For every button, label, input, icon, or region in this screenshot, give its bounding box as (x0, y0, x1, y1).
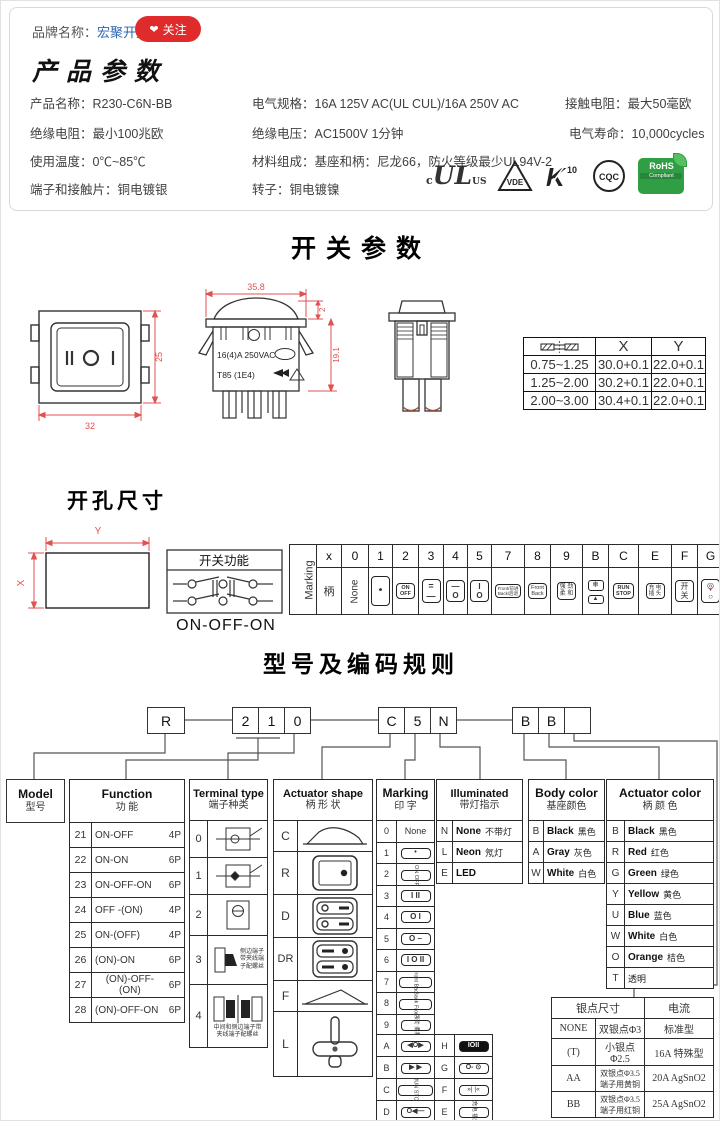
follow-button-label: 关注 (163, 21, 187, 38)
table-row: Marking x 0 1 2 3 4 5 7 8 9 B C E F G (290, 545, 720, 568)
code-box-color: B B (512, 707, 591, 734)
actuator-shape-l (298, 1012, 373, 1077)
cqc-logo: CQC (591, 158, 627, 194)
table-row: ELED (437, 863, 523, 884)
coding-rules-title: 型号及编码规则 (1, 645, 720, 679)
svg-text:X: X (16, 579, 27, 586)
actuator-shape-table: Actuator shape 柄 形 状 C R D DR (273, 779, 373, 1077)
table-row: NONE 双银点Φ3 标准型 (552, 1019, 714, 1039)
spec-terminal-plating: 端子和接触片：铜电镀银 (30, 179, 168, 198)
icon-marking-cell: ❄ ▲ (583, 568, 609, 615)
table-row: AGray灰色 (529, 842, 605, 863)
certification-logos: c UL US VDE K 10 CQC RoHS Compliant (426, 158, 684, 194)
triangle-icon: ▲ (588, 595, 604, 604)
col-y-header: Y (652, 338, 706, 356)
table-row: R (274, 852, 373, 895)
svg-text:2: 2 (318, 307, 327, 312)
table-row: F (274, 981, 373, 1012)
table-row: 0 (190, 821, 268, 858)
k10-logo: K 10 (544, 160, 580, 192)
table-row: C (274, 821, 373, 852)
svg-text:35.8: 35.8 (247, 282, 265, 292)
table-row: 4O I (377, 907, 435, 929)
table-header: Marking 印 字 (377, 780, 435, 821)
table-row: 9强劲 柔和 (377, 1014, 435, 1036)
xy-tolerance-table: X Y 0.75~1.2530.0+0.122.0+0.1 1.25~2.003… (523, 337, 706, 410)
table-row: 1.25~2.0030.2+0.122.0+0.1 (524, 374, 706, 392)
svg-text:T85 (1E4): T85 (1E4) (217, 370, 255, 380)
table-header: Actuator color 柄 颜 色 (607, 780, 714, 821)
actuator-color-table: Actuator color 柄 颜 色 BBlack黑色 RRed红色 GGr… (606, 779, 714, 989)
brand-label: 品牌名称： (32, 25, 97, 40)
dpdt-circuit-diagram (173, 577, 273, 605)
table-row: 5O – (377, 928, 435, 950)
svg-text:CQC: CQC (599, 172, 620, 182)
table-row: 27(ON)-OFF-(ON)6P (70, 973, 185, 998)
spec-rotor: 转子：铜电镀镍 (252, 179, 340, 198)
silver-point-table: 银点尺寸 电流 NONE 双银点Φ3 标准型 (T) 小银点Φ2.5 16A 特… (551, 997, 714, 1118)
product-params-title: 产品参数 (32, 52, 168, 88)
product-spec-page: 品牌名称：宏聚开关 ❤ 关注 产品参数 产品名称：R230-C6N-BB 绝缘电… (0, 0, 720, 1121)
svg-text:10: 10 (567, 165, 577, 175)
svg-text:16(4)A 250VAC: 16(4)A 250VAC (217, 350, 275, 360)
table-row: T透明 (607, 968, 714, 989)
terminal-drawing-4: 中间和侧边端子带 夹线端子配螺丝 (208, 985, 268, 1048)
spec-insulation-resistance: 绝缘电阻：最小100兆欧 (30, 123, 163, 142)
spec-product-name: 产品名称：R230-C6N-BB (30, 93, 172, 112)
svg-text:32: 32 (85, 421, 95, 431)
k-mark-icon (273, 369, 289, 377)
handle-cell: 柄 (317, 568, 342, 615)
table-row: UBlue蓝色 (607, 905, 714, 926)
table-row: 柄 None • ONOFF =— —O IO Front/前进Back/后退 … (290, 568, 720, 615)
terminal-type-table: Terminal type 端子种类 0 1 2 3 (189, 779, 268, 1048)
table-row: A◀O▶ HIOII (377, 1035, 493, 1057)
spec-contact-resistance: 接触电阻：最大50毫欧 (565, 93, 691, 112)
marking-row-header: Marking (290, 545, 317, 615)
table-header: 银点尺寸 电流 (552, 998, 714, 1019)
on-off-on-label: ON-OFF-ON (159, 617, 293, 635)
actuator-shape-r (298, 852, 373, 895)
cutout-drawing: Y X (16, 521, 181, 631)
actuator-shape-f (298, 981, 373, 1012)
table-row: 1 (190, 858, 268, 895)
table-row: 2.00~3.0030.4+0.122.0+0.1 (524, 392, 706, 410)
product-card: 品牌名称：宏聚开关 ❤ 关注 产品参数 产品名称：R230-C6N-BB 绝缘电… (9, 7, 713, 211)
table-row: (T) 小银点Φ2.5 16A 特殊型 (552, 1039, 714, 1066)
switch-function-box: 开关功能 (161, 546, 291, 616)
svg-text:Y: Y (95, 526, 102, 537)
spec-dielectric: 绝缘电压：AC1500V 1分钟 (252, 123, 403, 142)
table-row: 3 侧边端子 带夹线端 子配螺丝 (190, 936, 268, 985)
function-table: Function 功 能 21ON-OFF4P 22ON-ON6P 23ON-O… (69, 779, 185, 1023)
table-row: 0None (377, 821, 435, 843)
front-view-drawing (31, 311, 149, 403)
side-view-drawing: 16(4)A 250VAC T85 (1E4) (199, 298, 313, 418)
table-row: NNone不带灯 (437, 821, 523, 842)
col-x-header: X (596, 338, 652, 356)
follow-button[interactable]: ❤ 关注 (135, 16, 201, 42)
table-row: BBlack黑色 (607, 821, 714, 842)
table-header: Illuminated 带灯指示 (437, 780, 523, 821)
table-row: LNeon氖灯 (437, 842, 523, 863)
model-box: Model 型号 (6, 779, 65, 823)
marking-code-table-2: A◀O▶ HIOII B▶ ▶ GO- ⊙ CRUN STOP F»| |« D… (376, 1034, 493, 1121)
table-row: 25ON-(OFF)4P (70, 923, 185, 948)
vde-logo: VDE (497, 159, 533, 193)
table-row: B▶ ▶ GO- ⊙ (377, 1057, 493, 1079)
end-view-drawing (389, 301, 455, 411)
table-row: 1• (377, 842, 435, 864)
terminal-drawing-3: 侧边端子 带夹线端 子配螺丝 (208, 936, 268, 985)
table-row: RRed红色 (607, 842, 714, 863)
svg-text:开关功能: 开关功能 (199, 554, 250, 568)
snowflake-icon: ❄ (588, 580, 604, 591)
switch-params-title: 开关参数 (1, 229, 720, 265)
svg-text:19.1: 19.1 (332, 347, 341, 363)
actuator-shape-dr (298, 938, 373, 981)
table-row: L (274, 1012, 373, 1077)
terminal-drawing-2 (208, 895, 268, 936)
marking-strip-table: Marking x 0 1 2 3 4 5 7 8 9 B C E F G 柄 … (289, 544, 720, 615)
table-row: 4 中间和侧边端子带 夹线端子配螺丝 (190, 985, 268, 1048)
table-row: BBlack黑色 (529, 821, 605, 842)
table-row: 3I II (377, 885, 435, 907)
heart-icon: ❤ (149, 23, 158, 36)
illuminated-table: Illuminated 带灯指示 NNone不带灯 LNeon氖灯 ELED (436, 779, 523, 884)
table-row: YYellow黄色 (607, 884, 714, 905)
spec-temperature: 使用温度：0℃~85℃ (30, 151, 146, 170)
actuator-shape-d (298, 895, 373, 938)
code-box-function: 2 1 0 (232, 707, 311, 734)
table-row: X Y (524, 338, 706, 356)
actuator-shape-c (298, 821, 373, 852)
none-cell: None (342, 568, 369, 615)
svg-text:VDE: VDE (507, 178, 524, 187)
table-row: 8Back Front (377, 993, 435, 1015)
table-header: Function 功 能 (70, 780, 185, 823)
terminal-drawing-0 (208, 821, 268, 858)
marking-II-O-I (67, 351, 113, 365)
table-header: Terminal type 端子种类 (190, 780, 268, 821)
table-row: 21ON-OFF4P (70, 823, 185, 848)
table-row: 28(ON)-OFF-ON6P (70, 998, 185, 1023)
brand-row: 品牌名称：宏聚开关 (32, 22, 149, 42)
table-row: 6I O II (377, 950, 435, 972)
table-row: 0.75~1.2530.0+0.122.0+0.1 (524, 356, 706, 374)
cul-us-logo: c UL US (426, 165, 486, 188)
code-box-series: R (147, 707, 185, 734)
table-row: DO◀— E充电 插头 (377, 1101, 493, 1121)
marking-code-table: Marking 印 字 0None 1• 2ON OFF 3I II 4O I … (376, 779, 435, 1036)
table-row: GGreen绿色 (607, 863, 714, 884)
table-header: Body color 基座颜色 (529, 780, 605, 821)
table-row: 2 (190, 895, 268, 936)
body-color-table: Body color 基座颜色 BBlack黑色 AGray灰色 WWhite白… (528, 779, 605, 884)
table-row: AA 双银点Φ3.5端子用黄铜 20A AgSnO2 (552, 1066, 714, 1092)
table-row: CRUN STOP F»| |« (377, 1079, 493, 1101)
terminal-drawing-1 (208, 858, 268, 895)
rohs-logo: RoHS Compliant (638, 158, 684, 194)
table-row: 24OFF -(ON)4P (70, 898, 185, 923)
table-row: OOrange桔色 (607, 947, 714, 968)
spec-electrical-life: 电气寿命：10,000cycles (569, 123, 704, 142)
table-row: WWhite白色 (529, 863, 605, 884)
table-row: WWhite白色 (607, 926, 714, 947)
table-row: BB 双银点Φ3.5端子用红铜 25A AgSnO2 (552, 1092, 714, 1118)
table-row: 23ON-OFF-ON6P (70, 873, 185, 898)
table-row: 26(ON)-ON6P (70, 948, 185, 973)
table-row: D (274, 895, 373, 938)
spec-electrical-rating: 电气规格：16A 125V AC(UL CUL)/16A 250V AC (252, 93, 519, 112)
table-header: Actuator shape 柄 形 状 (274, 780, 373, 821)
panel-thickness-icon (524, 338, 596, 356)
table-row: 2ON OFF (377, 864, 435, 886)
code-box-style: C 5 N (378, 707, 457, 734)
table-row: 7Front Back (377, 971, 435, 993)
table-row: 22ON-ON6P (70, 848, 185, 873)
table-row: DR (274, 938, 373, 981)
svg-text:25: 25 (154, 352, 164, 362)
cutout-title: 开孔尺寸 (67, 485, 167, 515)
